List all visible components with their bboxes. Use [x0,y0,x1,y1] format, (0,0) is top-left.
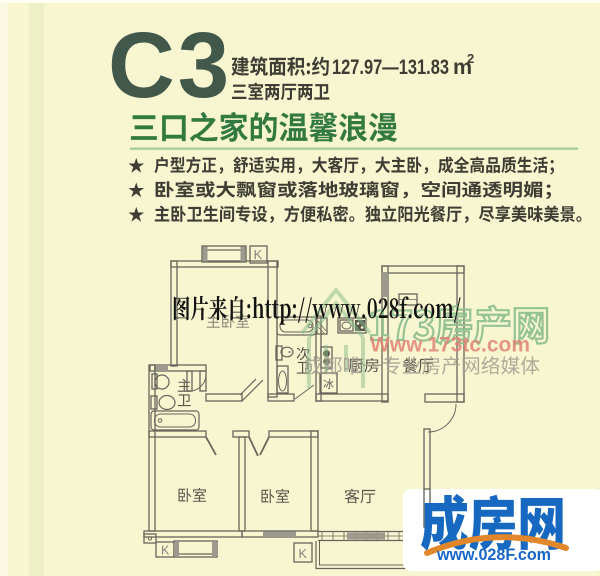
svg-text:K: K [161,544,170,558]
svg-text:www.028F.com: www.028F.com [436,545,551,564]
svg-text:C3: C3 [108,13,232,117]
svg-text:2: 2 [467,51,474,66]
svg-text:127.97—131.83: 127.97—131.83 [332,55,449,79]
svg-text:K: K [254,247,263,262]
svg-text:K: K [299,547,308,561]
svg-text:Www.173tc.com: Www.173tc.com [370,334,530,357]
